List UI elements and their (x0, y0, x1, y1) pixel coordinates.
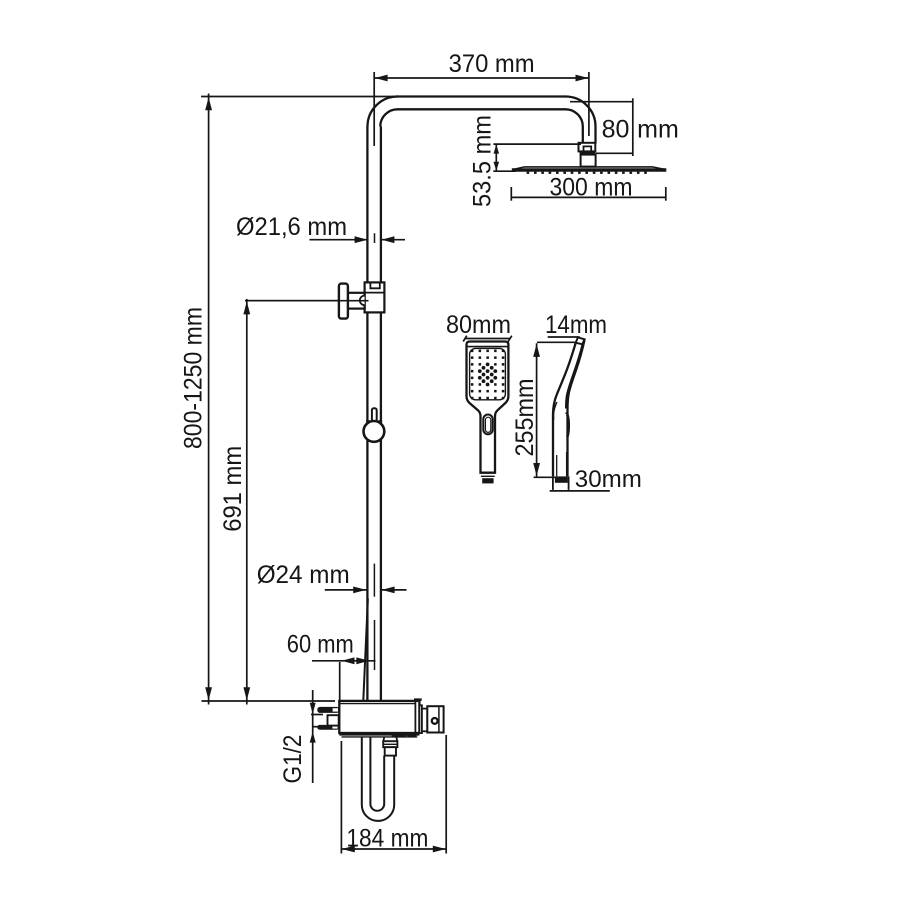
svg-text:800-1250 mm: 800-1250 mm (180, 307, 208, 449)
svg-text:184 mm: 184 mm (346, 825, 428, 853)
svg-text:255mm: 255mm (511, 379, 539, 457)
svg-text:691 mm: 691 mm (219, 446, 247, 532)
svg-text:G1/2: G1/2 (279, 735, 307, 784)
svg-text:53.5 mm: 53.5 mm (468, 115, 496, 207)
svg-text:30mm: 30mm (575, 466, 642, 493)
svg-text:370 mm: 370 mm (449, 50, 535, 78)
svg-text:Ø21,6 mm: Ø21,6 mm (236, 213, 347, 241)
svg-text:80mm: 80mm (446, 311, 511, 339)
svg-text:14mm: 14mm (545, 311, 607, 339)
svg-text:60 mm: 60 mm (287, 631, 354, 659)
svg-text:Ø24 mm: Ø24 mm (257, 561, 350, 589)
svg-text:80: 80 (602, 116, 630, 144)
svg-text:mm: mm (637, 116, 679, 144)
